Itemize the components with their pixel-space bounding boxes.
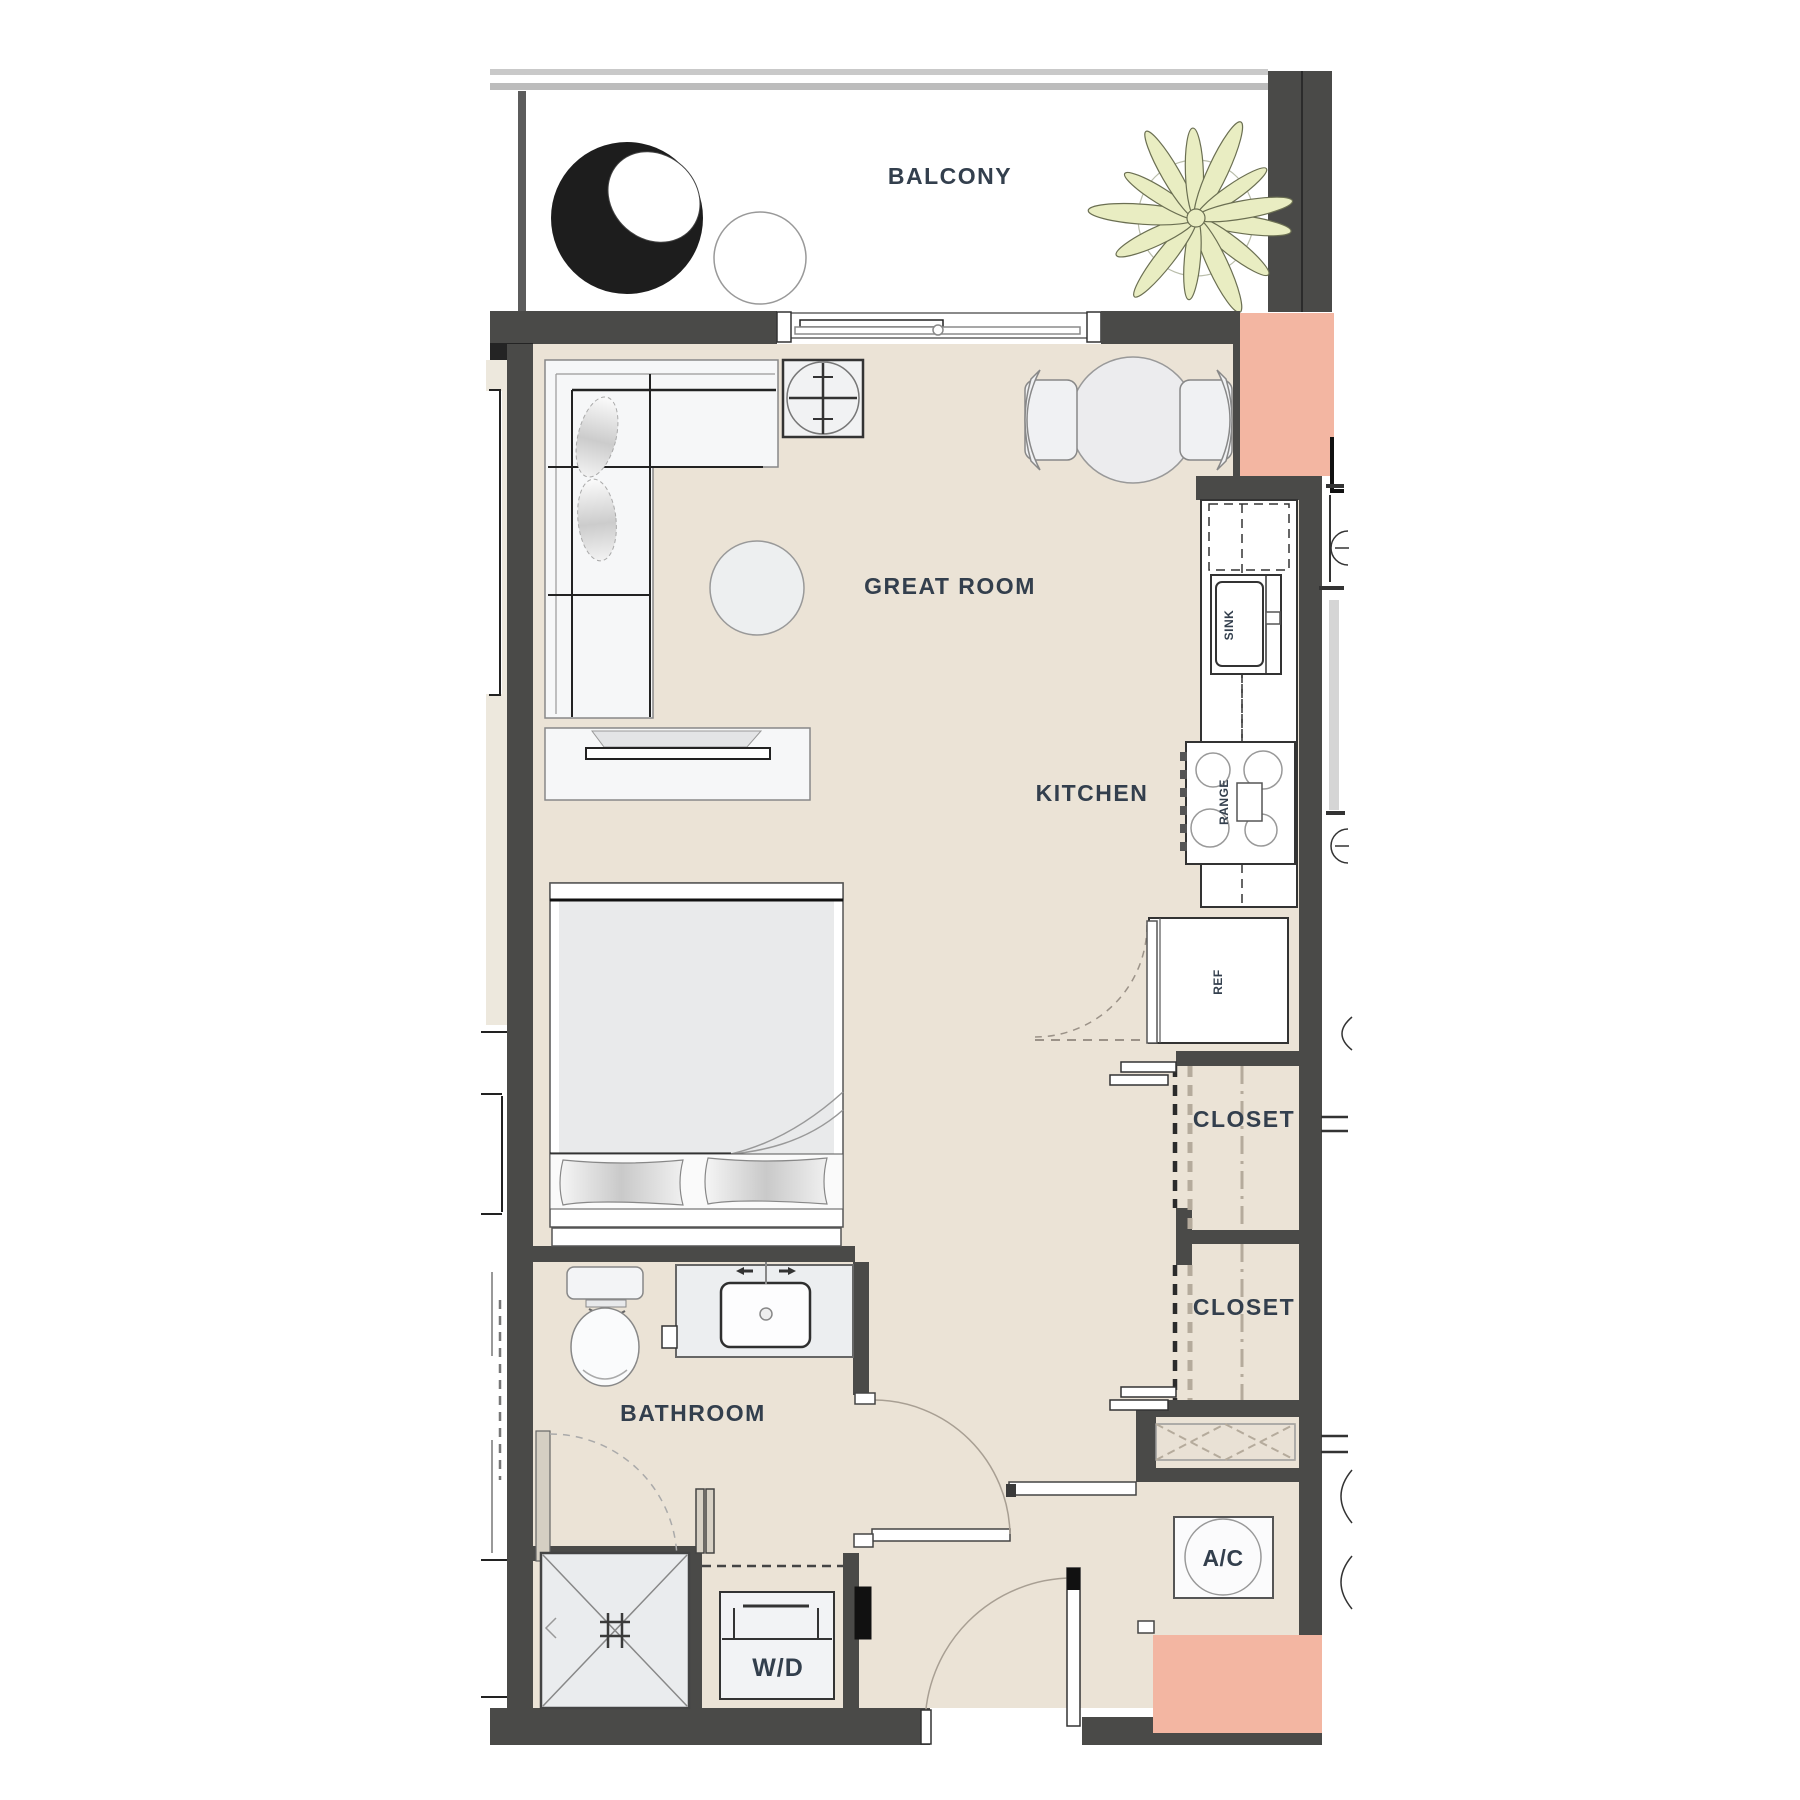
- svg-text:BATHROOM: BATHROOM: [620, 1400, 766, 1426]
- svg-text:REF: REF: [1211, 969, 1225, 995]
- svg-text:A/C: A/C: [1202, 1545, 1243, 1571]
- svg-text:SINK: SINK: [1222, 610, 1236, 641]
- svg-text:CLOSET: CLOSET: [1193, 1294, 1295, 1320]
- svg-text:CLOSET: CLOSET: [1193, 1106, 1295, 1132]
- svg-text:GREAT ROOM: GREAT ROOM: [864, 573, 1036, 599]
- svg-text:BALCONY: BALCONY: [888, 163, 1012, 189]
- svg-text:W/D: W/D: [752, 1654, 804, 1682]
- svg-text:RANGE: RANGE: [1217, 779, 1231, 825]
- svg-text:KITCHEN: KITCHEN: [1036, 780, 1149, 806]
